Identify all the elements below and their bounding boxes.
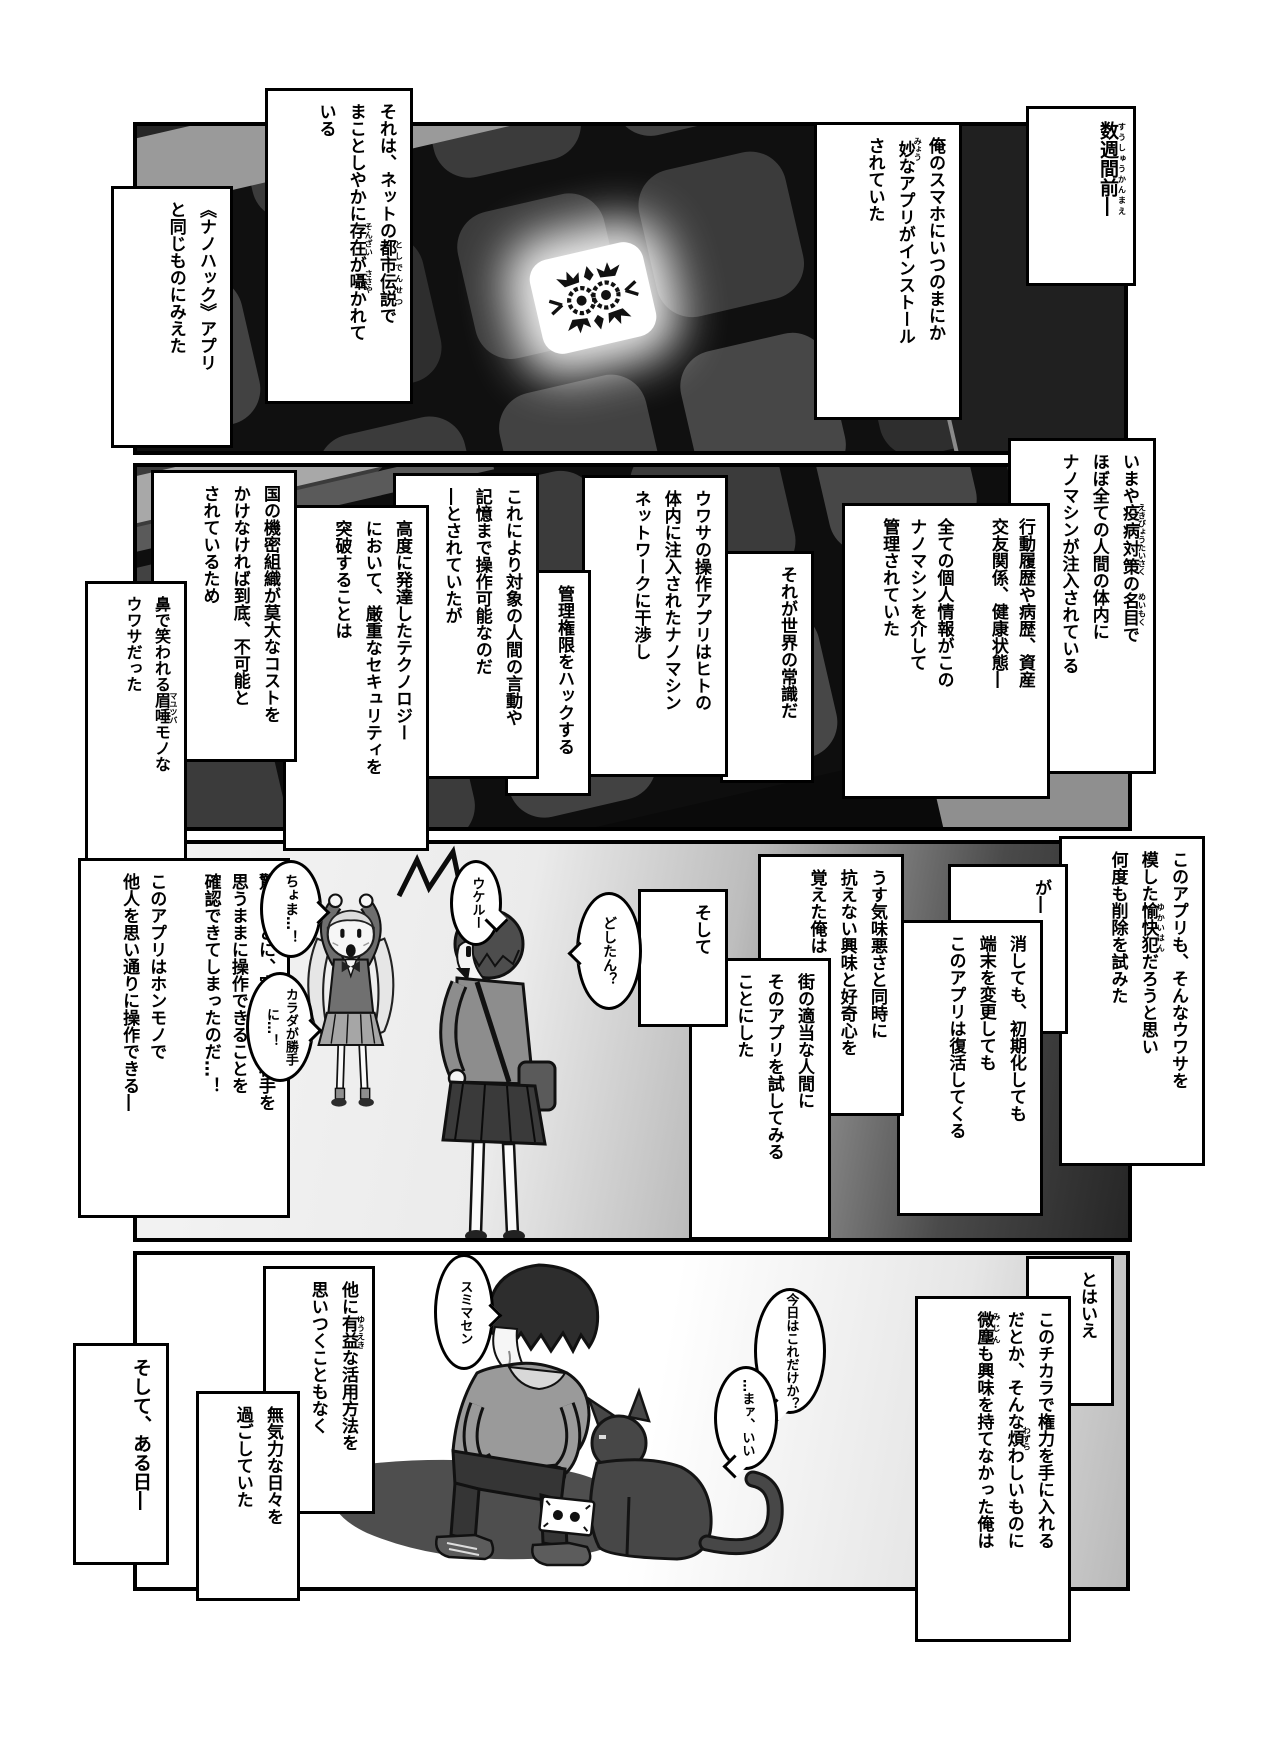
- caption-no-interest-in-power: このチカラで権力を手に入れる だとか、そんな煩わずらわしいものに 微塵みじんも興…: [915, 1296, 1071, 1642]
- bubble-text: …まァ、いい: [737, 1379, 756, 1457]
- girl-b-figure: [443, 910, 555, 1238]
- money-card: [539, 1496, 594, 1535]
- app-icon: [133, 451, 309, 455]
- speech-bubble-wait: ちょま…！: [260, 860, 322, 958]
- manga-page: 数週間前―すうしゅうかんまえ 俺のスマホにいつのまにか 妙みょうなアプリがインス…: [0, 0, 1268, 1764]
- nano-bug-glyph: [536, 250, 651, 347]
- app-icon: [631, 144, 811, 324]
- speech-bubble-whats-up: どしたん？: [576, 892, 642, 1010]
- caption-strange-app: 俺のスマホにいつのまにか 妙みょうなアプリがインストール されていた: [814, 122, 962, 420]
- caption-one-day: そして、ある日―: [73, 1343, 169, 1565]
- speech-bubble-lol: ウケルー: [450, 860, 502, 946]
- bubble-text: ちょま…！: [281, 874, 301, 944]
- app-icon: [492, 367, 672, 455]
- bubble-text: どしたん？: [599, 916, 619, 986]
- bubble-text: 今日はこれだけか？: [781, 1293, 800, 1410]
- app-icon: [311, 409, 491, 455]
- caption-security: 高度に発達したテクノロジー において、厳重なセキュリティを 突破することは: [283, 505, 429, 851]
- caption-tried-delete: このアプリも、そんなウワサを 模した愉快犯ゆかいはんだろうと思い 何度も削除を試…: [1059, 836, 1205, 1166]
- caption-laughable-rumor: 鼻で笑われる眉唾マユツバモノな ウワサだった: [85, 581, 187, 861]
- bubble-text: ウケルー: [467, 877, 486, 929]
- caption-rumor-app: ウワサの操作アプリはヒトの 体内に注入されたナノマシン ネットワークに干渉し: [582, 475, 728, 777]
- app-icon: [589, 122, 769, 143]
- caption-listless-days: 無気力な日々を 過ごしていた: [196, 1391, 300, 1601]
- caption-app-revives: 消しても、初期化しても 端末を変更しても このアプリは復活してくる: [897, 920, 1043, 1216]
- caption-and-then: そして: [638, 889, 728, 1027]
- speech-bubble-excuse-me: スミマセン: [434, 1254, 494, 1370]
- caption-personal-data: 行動履歴や病歴、資産 交友関係、健康状態― 全ての個人情報がこの ナノマシンを介…: [842, 503, 1050, 799]
- girl-a-figure: [308, 895, 393, 1107]
- caption-common-sense: それが世界の常識だ: [720, 551, 814, 783]
- speech-bubble-body-moving: カラダが勝手に…！: [246, 972, 314, 1082]
- caption-nanohack: 《ナノハック》アプリ と同じものにみえた: [111, 186, 233, 448]
- bubble-text: スミマセン: [455, 1280, 474, 1345]
- bubble-text: カラダが勝手に…！: [261, 975, 299, 1079]
- caption-urban-legend: それは、ネットの都市伝説としでんせつで まことしやかに存在そんざいが囁ささやかれ…: [265, 88, 413, 404]
- speech-bubble-well-fine: …まァ、いい: [714, 1366, 778, 1470]
- caption-weeks-ago: 数週間前―すうしゅうかんまえ: [1026, 106, 1136, 286]
